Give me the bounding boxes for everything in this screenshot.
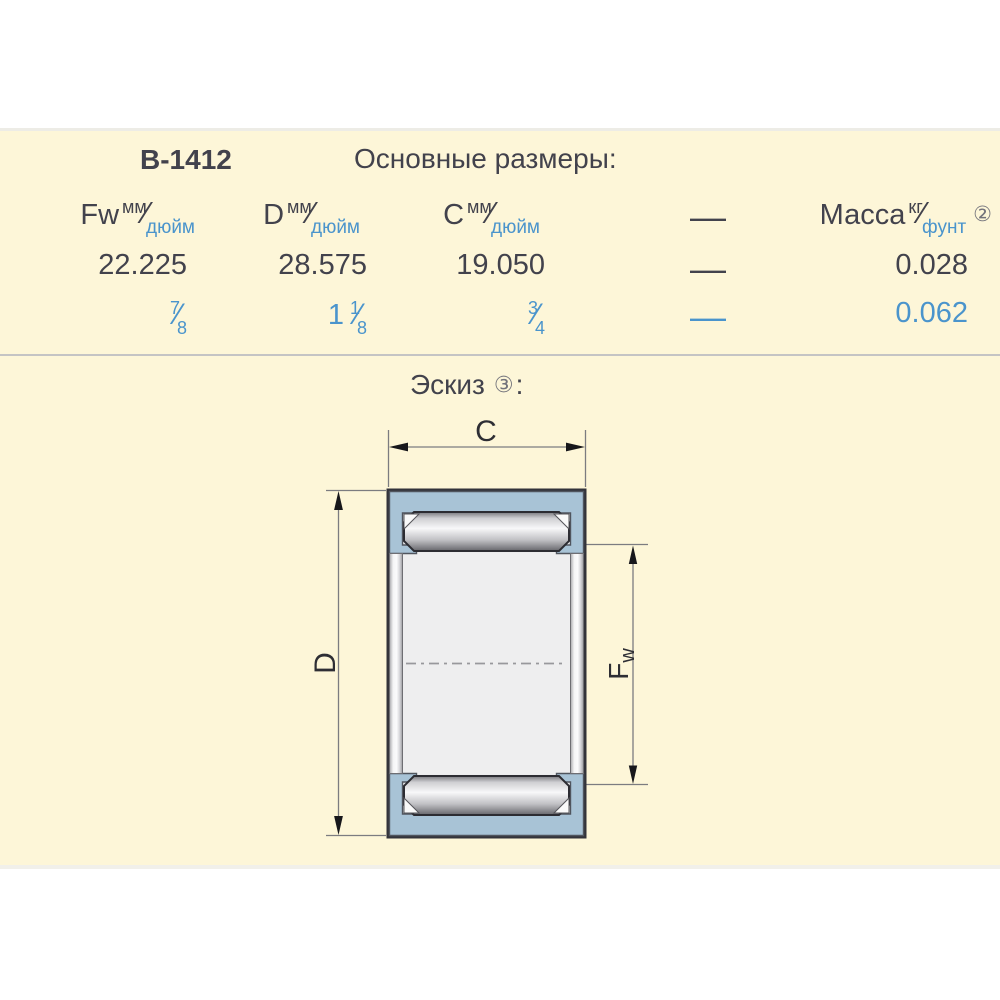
dimension-label-c: C	[475, 415, 497, 448]
fw-label-sub: w	[617, 648, 639, 664]
arrow-down-icon	[334, 816, 343, 835]
arrow-down-icon	[629, 766, 637, 785]
needle-roller-bottom	[404, 776, 569, 815]
bearing-body	[388, 490, 585, 837]
wall-right	[571, 554, 584, 774]
bearing-sketch: C D Fw	[0, 0, 1000, 1000]
fw-label-main: F	[603, 663, 634, 680]
needle-roller-top	[404, 512, 569, 551]
wall-left	[390, 554, 403, 774]
arrow-up-icon	[629, 546, 637, 565]
arrow-up-icon	[334, 491, 343, 510]
arrow-left-icon	[389, 443, 408, 452]
dimension-label-fw: Fw	[603, 648, 639, 680]
arrow-right-icon	[566, 443, 585, 452]
dimension-label-d: D	[309, 652, 342, 674]
